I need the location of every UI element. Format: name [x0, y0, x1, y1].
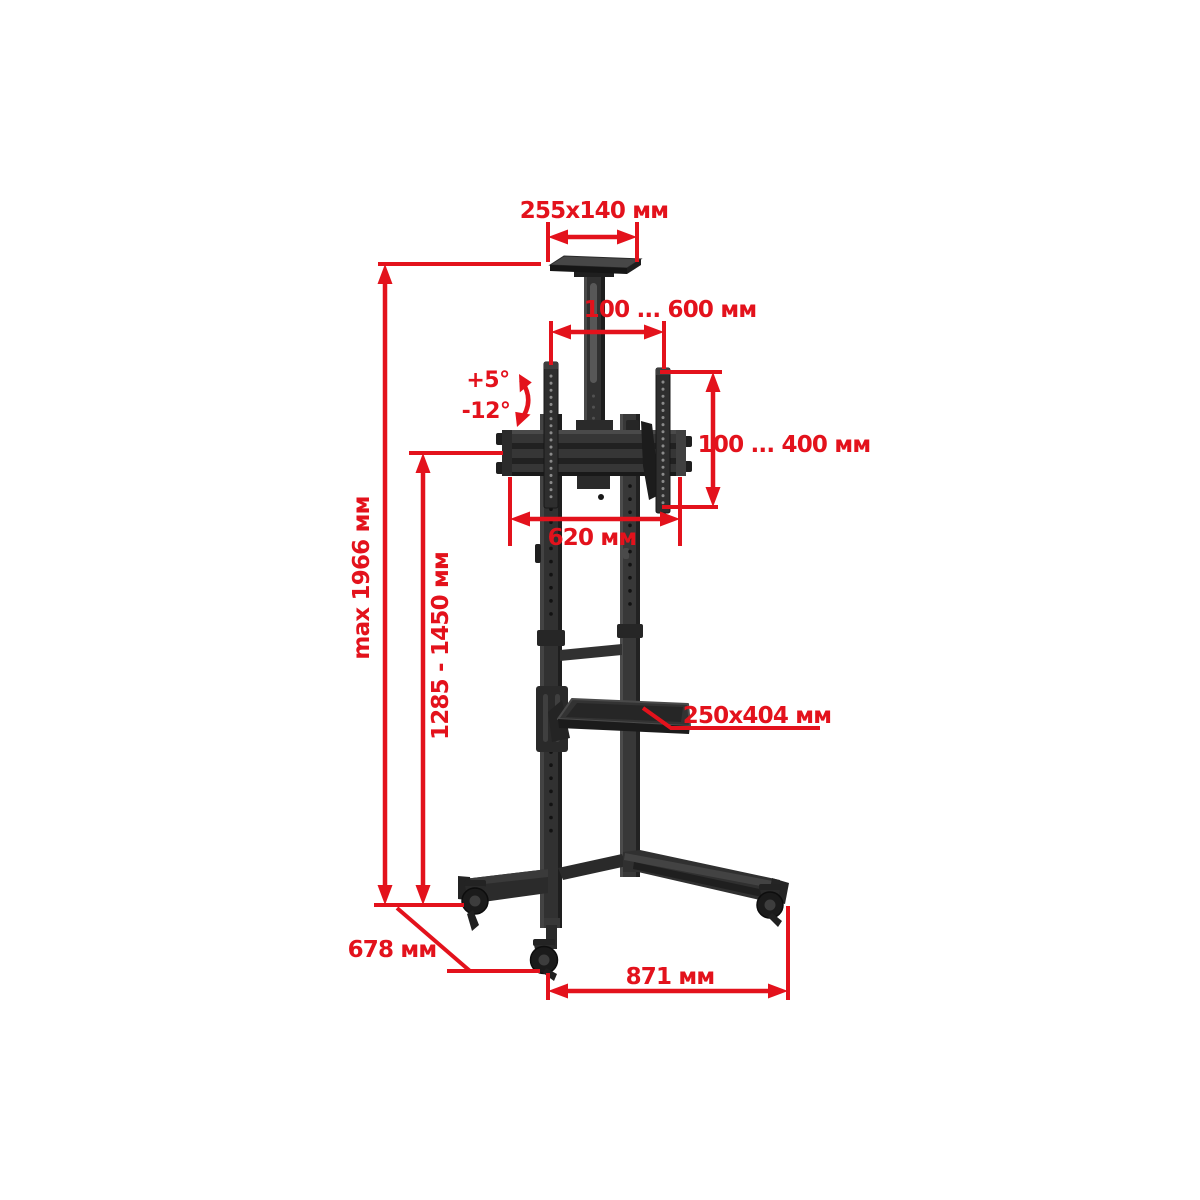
dim-column-height-arrow-bottom [416, 885, 431, 905]
dim-max-height-arrow-bottom [378, 885, 393, 905]
dim-top-shelf: 255x140 мм [520, 198, 668, 262]
caster-hub [765, 900, 776, 911]
caster-hub [470, 896, 481, 907]
crossbar-bolt [598, 494, 604, 500]
crossbar-endcap-right [676, 430, 686, 476]
dim-top-shelf-label: 255x140 мм [520, 198, 668, 224]
vesa-rail-right [656, 368, 670, 513]
front-post-highlight [540, 414, 544, 928]
tilt-down-label: -12° [462, 399, 511, 424]
av-shelf-bracket-slot-1 [543, 694, 548, 742]
dim-vesa-width-arrow-right [644, 325, 664, 340]
leader-shelf-size-label: 250x404 мм [683, 703, 831, 729]
caster-plate [464, 880, 486, 887]
dim-vesa-height-arrow-top [706, 372, 721, 392]
tilt-arrow-up [513, 371, 534, 393]
dim-base-width: 871 мм [548, 906, 788, 1000]
dim-top-shelf-arrow-left [548, 230, 568, 245]
dim-vesa-width-arrow-left [551, 325, 571, 340]
crossbar-endcap-left [502, 430, 512, 476]
vesa-rail-left [544, 362, 558, 508]
dim-base-width-arrow-right [768, 984, 788, 999]
dim-base-width-arrow-left [548, 984, 568, 999]
base-strut [558, 854, 627, 880]
diagram-canvas: 255x140 мм max 1966 мм 1285 - 1450 мм [0, 0, 1200, 1200]
dim-max-height-arrow-top [378, 264, 393, 284]
dim-top-shelf-arrow-right [617, 230, 637, 245]
dim-base-width-label: 871 мм [626, 964, 715, 990]
av-shelf [536, 686, 690, 752]
dim-vesa-width-label: 100 ... 600 мм [584, 297, 757, 323]
dim-max-height-label: max 1966 мм [349, 496, 375, 659]
dim-bracket-width-arrow-right [660, 512, 680, 527]
dim-bracket-width-arrow-left [510, 512, 530, 527]
tilt-annotation: +5° -12° [462, 368, 534, 430]
rear-post-shade [636, 414, 640, 877]
front-post-collar [537, 630, 565, 646]
dim-bracket-width-label: 620 мм [548, 525, 637, 551]
column-shade [601, 272, 605, 432]
dim-vesa-width: 100 ... 600 мм [551, 297, 756, 369]
crossbar-knob [626, 420, 639, 431]
caster-plate [759, 884, 781, 891]
camera-shelf [550, 256, 641, 277]
dim-base-depth: 678 мм [348, 908, 540, 971]
front-post-shade [558, 414, 562, 928]
caster-hub [539, 955, 550, 966]
dim-column-height-arrow-top [416, 453, 431, 473]
crossbar-clamp [577, 476, 610, 489]
dim-vesa-height-arrow-bottom [706, 487, 721, 507]
dim-column-height-label: 1285 - 1450 мм [428, 552, 454, 740]
tilt-up-label: +5° [466, 368, 509, 393]
tv-stand [458, 256, 789, 981]
column-highlight [584, 272, 587, 432]
caster-plate [533, 939, 555, 946]
front-post-knob [535, 544, 541, 563]
dim-base-depth-label: 678 мм [348, 937, 437, 963]
caster-rear-right [757, 884, 783, 927]
dim-column-height: 1285 - 1450 мм [409, 453, 503, 905]
tv-stand-dimension-diagram: 255x140 мм max 1966 мм 1285 - 1450 мм [0, 0, 1200, 1200]
cross-brace [560, 644, 622, 661]
annotations: 255x140 мм max 1966 мм 1285 - 1450 мм [348, 198, 871, 1000]
caster-front [531, 939, 558, 981]
caster-rear-left [462, 880, 488, 931]
rear-post-collar [617, 624, 643, 638]
dim-vesa-height-label: 100 ... 400 мм [698, 432, 871, 458]
